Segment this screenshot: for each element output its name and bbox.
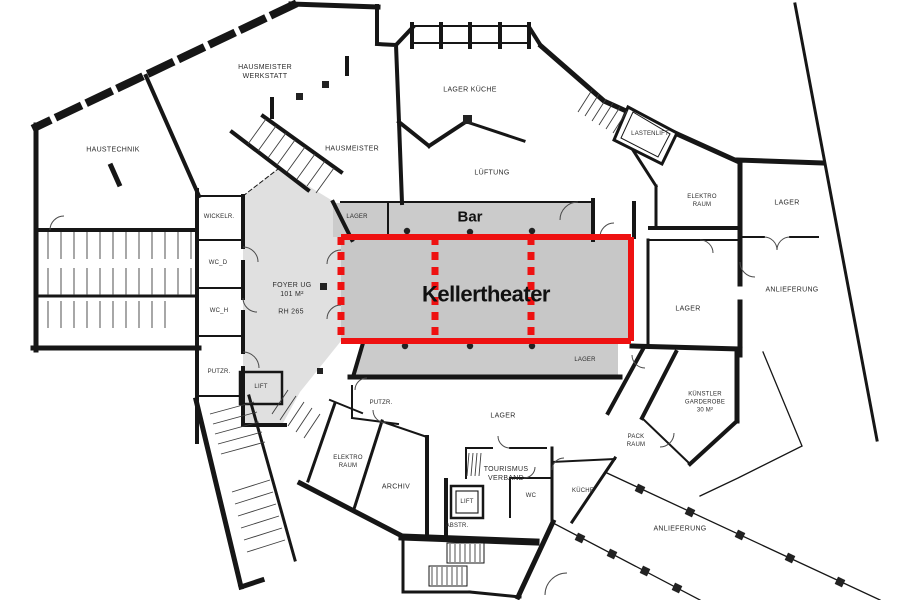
room-label-pack-raum: PACK RAUM	[627, 434, 645, 450]
room-label-wc-s: WC	[526, 493, 536, 501]
room-label-haustechnik: HAUSTECHNIK	[86, 145, 139, 154]
room-label-elektro-raum-ne: ELEKTRO RAUM	[687, 194, 716, 210]
room-label-elektro-raum-sw: ELEKTRO RAUM	[333, 455, 362, 471]
room-label-hausmeister-werkstatt: HAUSMEISTER WERKSTATT	[238, 63, 292, 81]
room-label-putzr-w: PUTZR.	[208, 369, 231, 377]
kellertheater-label: Kellertheater	[422, 281, 550, 310]
room-label-hausmeister: HAUSMEISTER	[325, 144, 379, 153]
room-label-lueftung: LÜFTUNG	[474, 168, 509, 177]
room-label-kueche: KÜCHE	[572, 488, 594, 496]
room-label-wc-d: WC_D	[209, 260, 227, 268]
room-label-lager-ne: LAGER	[774, 198, 799, 207]
room-label-anlieferung-e: ANLIEFERUNG	[765, 285, 818, 294]
room-label-wickelr: WICKELR.	[204, 214, 235, 222]
room-label-putzr-s: PUTZR.	[370, 400, 393, 408]
room-label-wc-h: WC_H	[210, 308, 228, 316]
bar-label: Bar	[457, 207, 482, 227]
room-label-lift-w: LIFT	[254, 384, 267, 392]
room-label-lager-kueche: LAGER KÜCHE	[443, 85, 496, 94]
room-label-lager-s: LAGER	[490, 411, 515, 420]
room-label-kuenstler: KÜNSTLER GARDEROBE 30 M²	[685, 391, 725, 414]
floorplan-kellertheater: HAUSMEISTER WERKSTATT HAUSTECHNIK HAUSME…	[0, 0, 900, 600]
room-label-lastenlift: LASTENLIFT	[631, 131, 669, 139]
room-label-archiv: ARCHIV	[382, 482, 410, 491]
room-label-tourismus: TOURISMUS VERBAND	[484, 465, 529, 483]
room-label-lift-s: LIFT	[460, 499, 473, 507]
room-label-lager-bar: LAGER	[346, 214, 367, 222]
room-label-abstr: ABSTR.	[446, 523, 469, 531]
room-label-lager-stage: LAGER	[574, 357, 595, 365]
room-label-lager-e: LAGER	[675, 304, 700, 313]
room-label-foyer-rh: RH 265	[278, 307, 304, 316]
room-label-anlieferung-s: ANLIEFERUNG	[653, 524, 706, 533]
room-label-foyer: FOYER UG 101 M²	[273, 281, 312, 299]
